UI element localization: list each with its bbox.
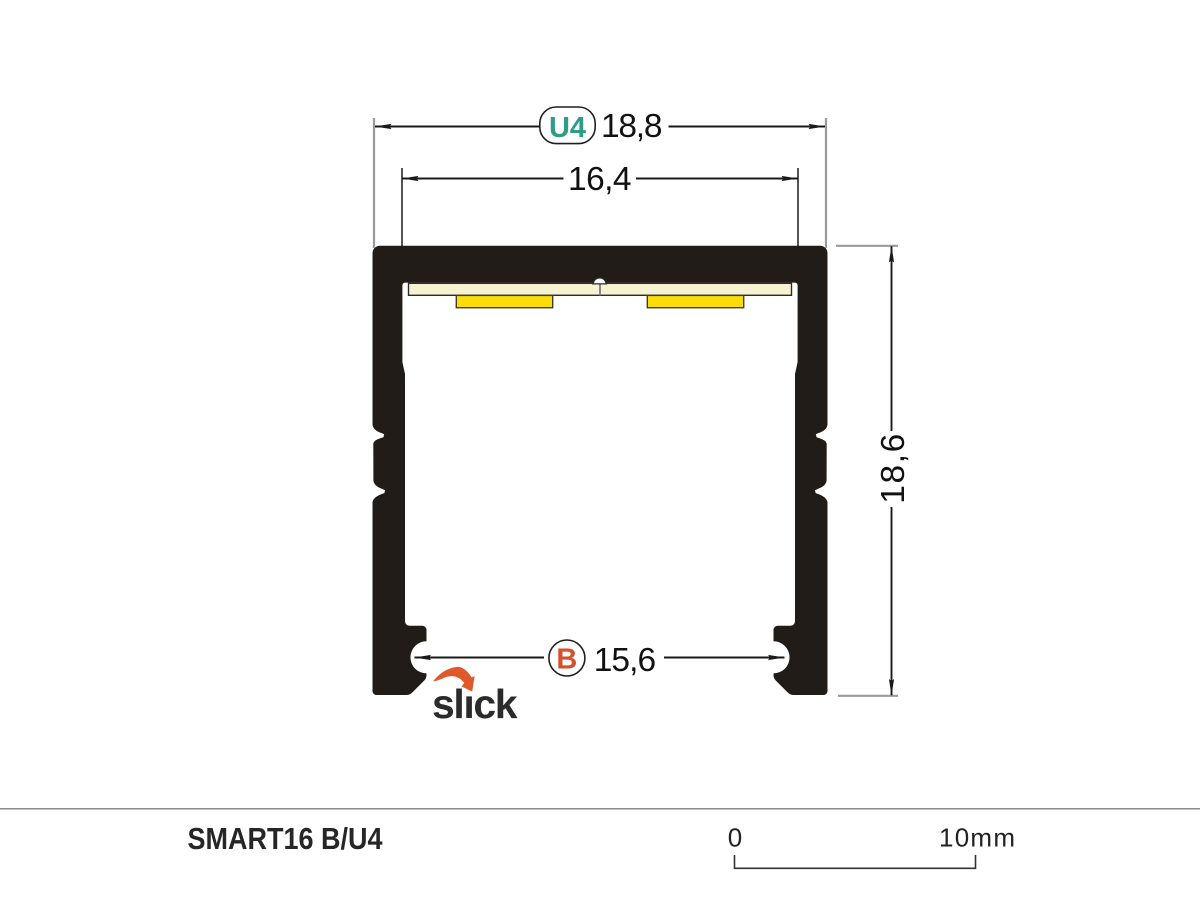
svg-text:18,6: 18,6	[875, 434, 912, 504]
svg-text:B: B	[556, 644, 577, 676]
svg-text:slıck: slıck	[432, 681, 518, 727]
svg-text:18,8: 18,8	[601, 108, 663, 145]
svg-text:10mm: 10mm	[939, 823, 1015, 853]
svg-text:0: 0	[728, 823, 742, 853]
svg-text:U4: U4	[549, 112, 586, 144]
svg-text:15,6: 15,6	[594, 642, 657, 679]
svg-text:SMART16 B/U4: SMART16 B/U4	[188, 821, 384, 856]
svg-text:16,4: 16,4	[568, 161, 632, 198]
